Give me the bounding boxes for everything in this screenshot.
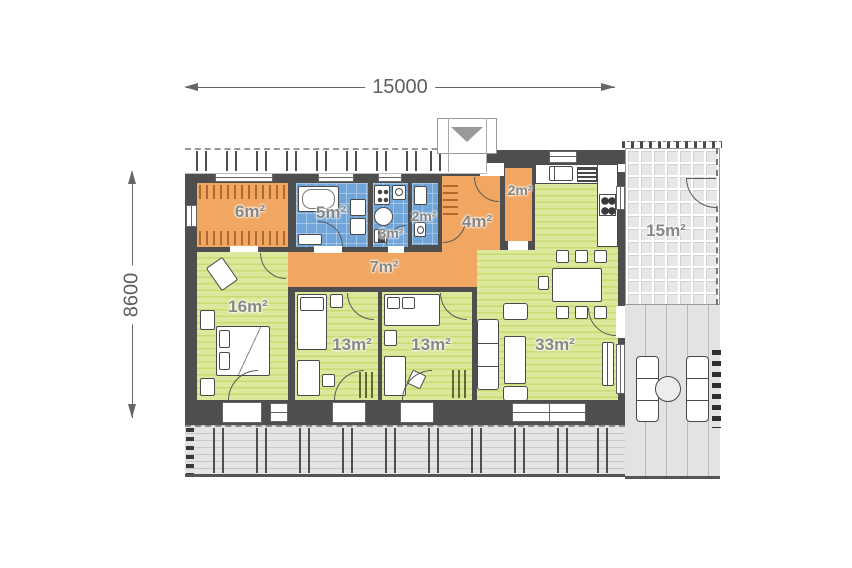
armchair-icon: [503, 303, 528, 320]
room-label-pantry: 2m²: [508, 182, 533, 198]
window: [616, 186, 625, 210]
window: [270, 403, 288, 422]
pergola-post: [316, 151, 327, 171]
porch-line: [448, 118, 449, 172]
coffee-table-icon: [504, 336, 526, 384]
door-gap: [388, 246, 404, 253]
nightstand-icon: [200, 310, 215, 330]
window: [318, 173, 354, 182]
deck-post: [385, 428, 396, 473]
window: [215, 173, 273, 182]
toilet-bowl: [417, 226, 424, 234]
window: [549, 151, 577, 163]
sink-icon: [350, 218, 366, 235]
right-deck-stairs-ticks: [712, 350, 721, 428]
deck-post: [597, 428, 608, 473]
deck-post: [471, 428, 482, 473]
right-deck-bottom-line: [625, 476, 720, 479]
living-deck-door-gap: [616, 306, 625, 338]
dining-chair-icon: [556, 306, 569, 319]
deck-post: [428, 428, 439, 473]
deck-post: [213, 428, 224, 473]
hall-wardrobe-rail-icon: [443, 185, 458, 215]
deck-bench-icon: [686, 356, 709, 422]
deck-post: [342, 428, 353, 473]
terrace-door-gap: [400, 402, 434, 423]
pergola-post: [226, 151, 237, 171]
room-label-bedroom-1: 16m²: [228, 297, 268, 317]
terrace-right-rail: [716, 148, 718, 176]
washing-machine-drum: [395, 188, 403, 196]
armchair-icon: [503, 386, 528, 401]
height-dimension-label: 8600: [121, 266, 144, 325]
wardrobe-rail-icon: [199, 231, 286, 245]
arrow-left-icon: [184, 83, 198, 91]
dining-chair-icon: [575, 306, 588, 319]
shelf-icon: [330, 294, 343, 308]
pergola-post: [286, 151, 297, 171]
terrace-top-hatch: [622, 141, 722, 148]
pergola-post: [406, 151, 417, 171]
sliding-door-gap: [512, 403, 586, 422]
pillow-icon: [402, 297, 415, 309]
pillow-icon: [219, 330, 230, 348]
terrace-door-gap: [222, 402, 262, 423]
room-label-bedroom-3: 13m²: [411, 335, 451, 355]
porch-line: [486, 118, 487, 172]
bottom-deck-bottom-line: [185, 474, 625, 477]
pergola-post: [376, 151, 387, 171]
arrow-right-icon: [601, 83, 615, 91]
room-label-wc: 2m²: [412, 208, 437, 224]
deck-post: [557, 428, 568, 473]
nightstand-icon: [384, 330, 397, 346]
side-table-icon: [322, 374, 335, 387]
radiator-icon: [602, 342, 614, 386]
pillow-icon: [387, 297, 400, 309]
sink-icon: [350, 199, 366, 216]
room-label-bathroom: 5m²: [316, 203, 346, 223]
room-label-bedroom-2: 13m²: [332, 335, 372, 355]
dining-chair-icon: [556, 250, 569, 263]
entrance-marker-icon: [451, 127, 483, 142]
stove-burners-icon: [374, 185, 390, 205]
deck-post: [299, 428, 310, 473]
pantry-door-gap: [508, 241, 528, 250]
room-label-utility: 3m²: [379, 225, 404, 241]
desk-icon: [297, 360, 320, 396]
deck-post: [514, 428, 525, 473]
room-label-entry-hall: 4m²: [462, 212, 492, 232]
room-label-terrace: 15m²: [646, 221, 686, 241]
dining-chair-icon: [575, 250, 588, 263]
kitchen-vent-icon: [577, 167, 597, 182]
floor-plan: 6m² 5m² 3m² 2m² 4m² 2m² 7m² 16m² 13m² 13…: [0, 0, 852, 568]
arrow-up-icon: [128, 170, 136, 184]
arrow-down-icon: [128, 404, 136, 418]
room-pantry: [505, 168, 532, 241]
bottom-deck-edge-ticks: [186, 428, 194, 474]
wardrobe-rail-icon: [199, 185, 286, 199]
dining-chair-icon: [594, 250, 607, 263]
clothes-rail-icon: [452, 370, 468, 398]
deck-table-icon: [655, 376, 681, 402]
nightstand-icon: [200, 378, 215, 396]
pillow-icon: [300, 297, 324, 311]
pergola-post: [196, 151, 207, 171]
pillow-icon: [219, 352, 230, 370]
sofa-icon: [477, 319, 499, 390]
pergola-post: [346, 151, 357, 171]
door-gap: [314, 246, 342, 253]
dining-chair-icon: [538, 276, 549, 290]
window: [186, 205, 197, 227]
window: [616, 344, 625, 394]
room-label-living: 33m²: [535, 335, 575, 355]
width-dimension-label: 15000: [365, 76, 435, 99]
window: [378, 173, 402, 182]
room-label-wardrobe: 6m²: [235, 202, 265, 222]
terrace-right-rail: [716, 206, 718, 305]
pergola-post: [430, 151, 441, 171]
room-label-corridor: 7m²: [370, 259, 398, 277]
boiler-icon: [374, 207, 393, 226]
dining-table-icon: [552, 268, 602, 302]
deck-post: [256, 428, 267, 473]
pergola-post: [256, 151, 267, 171]
kitchen-sink-icon: [549, 166, 573, 181]
wc-sink-icon: [414, 186, 427, 205]
terrace-door-gap: [332, 402, 366, 423]
cooktop-icon: [599, 194, 616, 216]
